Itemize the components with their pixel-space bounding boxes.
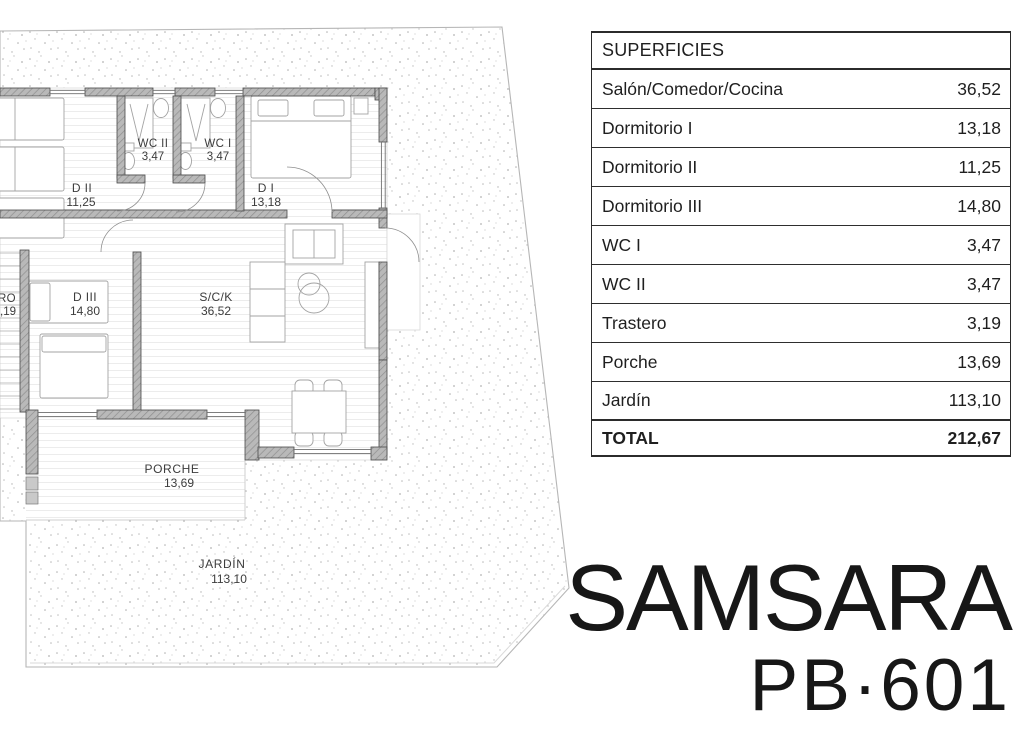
row-label: WC II [602,274,646,295]
table-row: Jardín 113,10 [592,382,1010,421]
row-value: 3,19 [967,313,1001,334]
east-landing [387,214,420,330]
svg-text:,19: ,19 [0,306,16,318]
row-value: 36,52 [957,79,1001,100]
svg-text:3,47: 3,47 [207,151,229,163]
row-value: 3,47 [967,274,1001,295]
svg-text:WC I: WC I [204,138,231,150]
cabinet-icon [365,262,379,348]
svg-text:14,80: 14,80 [70,304,100,318]
brand-model: PB·601 [491,649,1011,722]
svg-text:D I: D I [258,181,275,195]
kitchen-island-icon [285,224,343,264]
svg-text:13,69: 13,69 [164,476,194,490]
porch-floor [26,418,245,520]
row-label: WC I [602,235,641,256]
table-row: WC II 3,47 [592,265,1010,304]
svg-text:13,18: 13,18 [251,195,281,209]
row-label: Salón/Comedor/Cocina [602,79,783,100]
row-label: Dormitorio III [602,196,702,217]
row-value: 3,47 [967,235,1001,256]
table-row: Dormitorio II 11,25 [592,148,1010,187]
row-label: Jardín [602,390,651,411]
svg-text:3,47: 3,47 [142,151,164,163]
svg-text:WC II: WC II [138,138,169,150]
brand-name: SAMSARA [491,551,1011,645]
svg-text:36,52: 36,52 [201,304,231,318]
row-value: 14,80 [957,196,1001,217]
room-label-trastero: TRO ,19 [0,293,16,318]
room-label-wc2: WC II 3,47 [138,138,169,163]
svg-text:PORCHE: PORCHE [145,462,200,476]
table-header-row: SUPERFICIES [592,33,1010,70]
table-row: Dormitorio I 13,18 [592,109,1010,148]
svg-text:TRO: TRO [0,293,16,305]
room-label-wc1: WC I 3,47 [204,138,231,163]
sink-icon [154,99,169,118]
bed-icon [251,96,368,178]
branding-block: SAMSARA PB·601 [491,551,1011,722]
svg-text:S/C/K: S/C/K [199,290,232,304]
sink-icon [211,99,226,118]
row-value: 11,25 [959,157,1002,178]
room-label-d3: D III 14,80 [70,290,100,318]
row-value: 13,69 [957,352,1001,373]
table-row: Porche 13,69 [592,343,1010,382]
row-value: 13,18 [957,118,1001,139]
page: WC II 3,47 WC I 3,47 D II 11,25 D I 13,1… [0,0,1024,732]
table-header-label: SUPERFICIES [602,40,724,61]
row-label: Porche [602,352,657,373]
table-total-row: TOTAL 212,67 [592,421,1010,455]
row-value: 113,10 [949,390,1001,411]
table-row: WC I 3,47 [592,226,1010,265]
row-label: Trastero [602,313,667,334]
row-label: Dormitorio I [602,118,692,139]
surfaces-table: SUPERFICIES Salón/Comedor/Cocina 36,52 D… [591,31,1011,457]
table-row: Trastero 3,19 [592,304,1010,343]
svg-text:JARDÍN: JARDÍN [199,556,246,571]
table-row: Dormitorio III 14,80 [592,187,1010,226]
room-label-sck: S/C/K 36,52 [199,290,232,318]
svg-text:11,25: 11,25 [66,195,95,209]
svg-text:113,10: 113,10 [211,572,247,586]
sofa-icon [250,262,285,342]
row-label: Dormitorio II [602,157,697,178]
total-label: TOTAL [602,428,659,449]
total-value: 212,67 [947,428,1001,449]
svg-text:D II: D II [72,181,92,195]
svg-text:D III: D III [73,290,97,304]
table-row: Salón/Comedor/Cocina 36,52 [592,70,1010,109]
